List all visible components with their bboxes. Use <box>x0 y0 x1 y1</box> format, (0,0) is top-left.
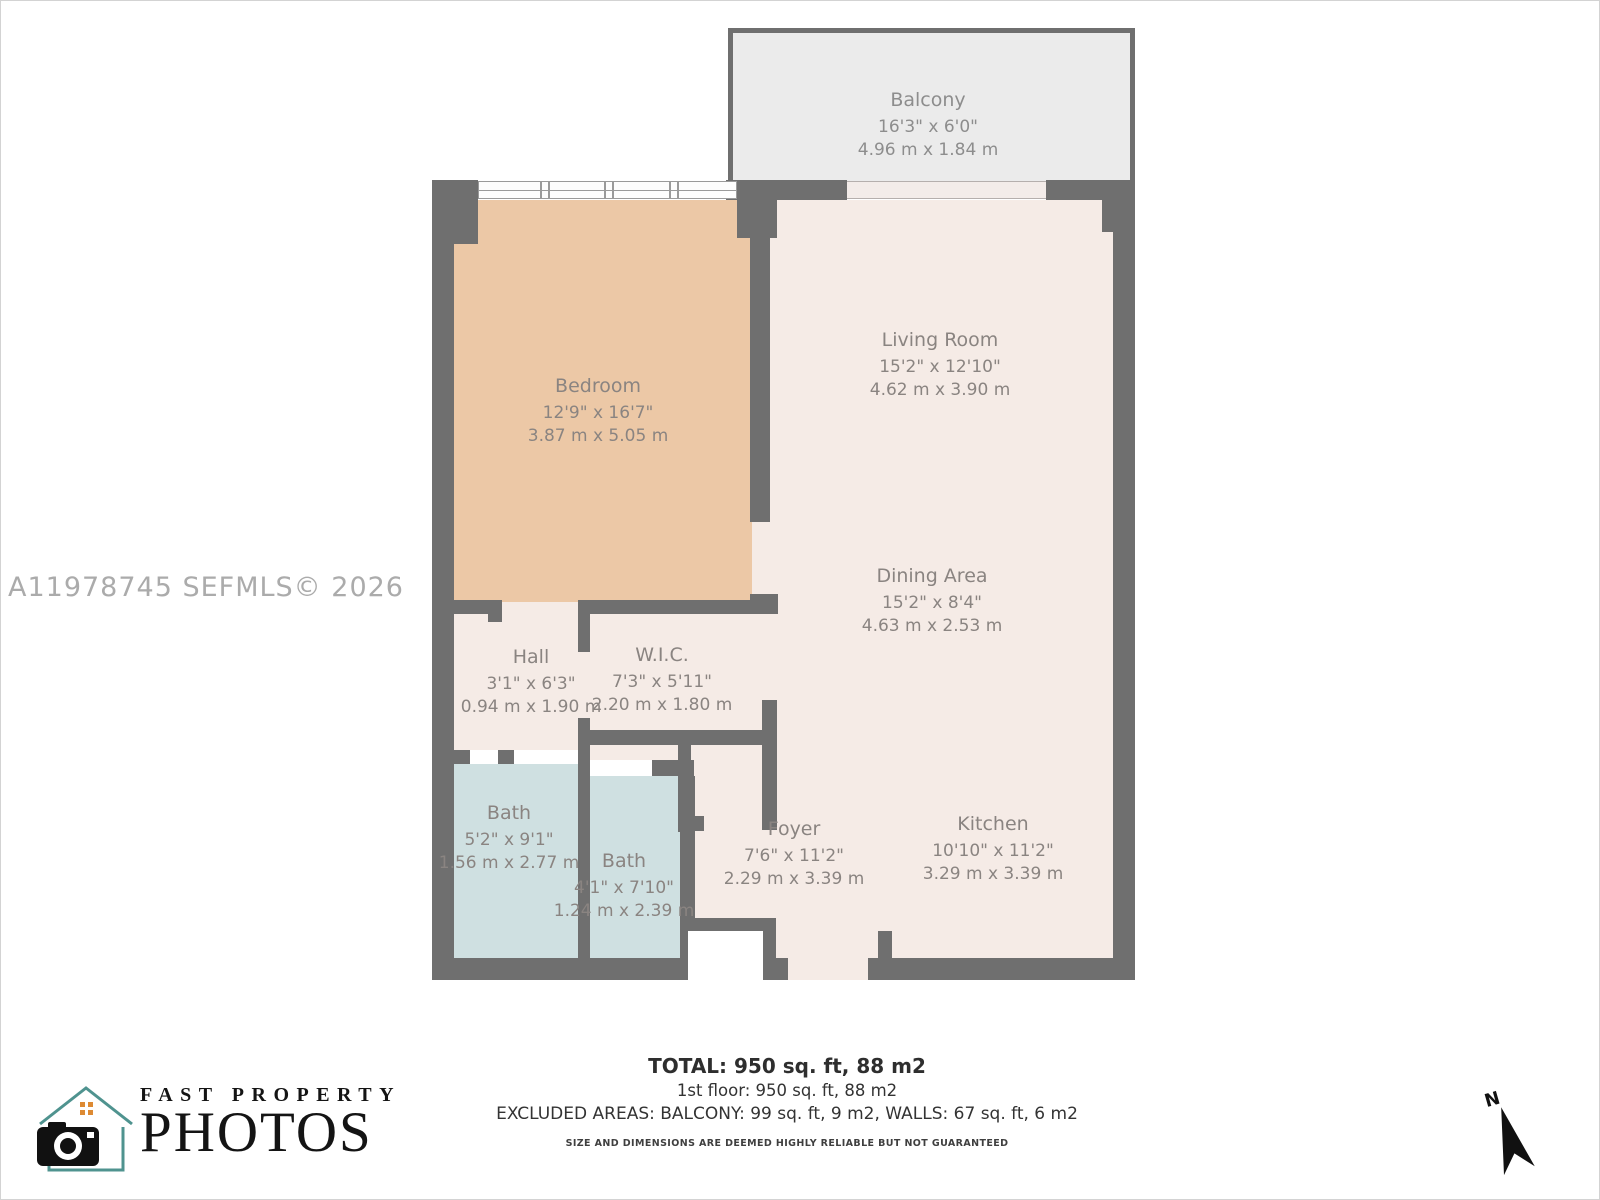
hall-name: Hall <box>461 645 602 670</box>
door-gap-bath2 <box>590 760 652 776</box>
balcony-dim-metric: 4.96 m x 1.84 m <box>858 139 999 162</box>
bedroom-name: Bedroom <box>528 374 669 399</box>
bath2-dim-imperial: 4'1" x 7'10" <box>554 877 695 900</box>
wall-bottom-a <box>432 958 688 980</box>
dining-area-dim-metric: 4.63 m x 2.53 m <box>862 615 1003 638</box>
living-room-dim-metric: 4.62 m x 3.90 m <box>870 379 1011 402</box>
logo-line2: PHOTOS <box>140 1107 401 1159</box>
wall-hall-bottom-a <box>454 750 470 764</box>
foyer-label: Foyer 7'6" x 11'2" 2.29 m x 3.39 m <box>724 817 865 891</box>
living-room-label: Living Room 15'2" x 12'10" 4.62 m x 3.90… <box>870 328 1011 402</box>
mls-watermark: A11978745 SEFMLS© 2026 <box>8 572 404 603</box>
compass: N <box>1462 1080 1558 1192</box>
north-arrow-icon: N <box>1462 1080 1558 1188</box>
door-gap-hall-bath1-left <box>470 750 498 764</box>
bath2-label: Bath 4'1" x 7'10" 1.24 m x 2.39 m <box>554 849 695 923</box>
balcony-sliding-door <box>847 181 1046 199</box>
kitchen-label: Kitchen 10'10" x 11'2" 3.29 m x 3.39 m <box>923 812 1064 886</box>
dining-area-name: Dining Area <box>862 564 1003 589</box>
north-label: N <box>1482 1088 1502 1112</box>
entry-threshold-floor <box>788 958 868 980</box>
kitchen-dim-imperial: 10'10" x 11'2" <box>923 840 1064 863</box>
logo-text: FAST PROPERTY PHOTOS <box>140 1080 401 1159</box>
wall-top-living-a <box>777 180 847 200</box>
hall-dim-metric: 0.94 m x 1.90 m <box>461 696 602 719</box>
wall-entry-stub <box>763 931 776 959</box>
wic-label: W.I.C. 7'3" x 5'11" 2.20 m x 1.80 m <box>592 643 733 717</box>
wall-wic-bottom <box>578 730 777 745</box>
window-glass-line <box>479 190 736 191</box>
window-mullion <box>677 182 679 198</box>
foyer-name: Foyer <box>724 817 865 842</box>
kitchen-name: Kitchen <box>923 812 1064 837</box>
logo-camera-icon <box>37 1122 99 1166</box>
first-floor-area-text: 1st floor: 950 sq. ft, 88 m2 <box>462 1081 1112 1100</box>
bedroom-label: Bedroom 12'9" x 16'7" 3.87 m x 5.05 m <box>528 374 669 448</box>
bath2-dim-metric: 1.24 m x 2.39 m <box>554 900 695 923</box>
dining-area-dim-imperial: 15'2" x 8'4" <box>862 592 1003 615</box>
wic-name: W.I.C. <box>592 643 733 668</box>
foyer-dim-metric: 2.29 m x 3.39 m <box>724 868 865 891</box>
logo-house-camera-icon <box>36 1080 136 1174</box>
door-gap-hall-bath1-right <box>514 750 578 764</box>
wall-closet-right <box>762 700 777 830</box>
hall-dim-imperial: 3'1" x 6'3" <box>461 673 602 696</box>
wic-dim-metric: 2.20 m x 1.80 m <box>592 694 733 717</box>
wall-top-living-b <box>1046 180 1135 200</box>
wall-bath2-top <box>652 760 694 776</box>
dining-area-label: Dining Area 15'2" x 8'4" 4.63 m x 2.53 m <box>862 564 1003 638</box>
balcony-dim-imperial: 16'3" x 6'0" <box>858 116 999 139</box>
wall-wic-top <box>578 600 777 614</box>
window-mullion <box>540 182 542 198</box>
wall-under-bedroom-stub <box>488 600 502 622</box>
wall-bedroom-living <box>750 200 770 522</box>
window-mullion <box>604 182 606 198</box>
entry-alcove <box>688 931 763 980</box>
window-mullion <box>669 182 671 198</box>
logo-house-roof <box>40 1088 132 1124</box>
foyer-dim-imperial: 7'6" x 11'2" <box>724 845 865 868</box>
bedroom-window <box>478 181 737 199</box>
wall-bottom-b <box>762 958 788 980</box>
kitchen-dim-metric: 3.29 m x 3.39 m <box>923 863 1064 886</box>
bath1-name: Bath <box>439 801 580 826</box>
wall-kitchen-stub <box>878 931 892 959</box>
living-room-dim-imperial: 15'2" x 12'10" <box>870 356 1011 379</box>
hall-label: Hall 3'1" x 6'3" 0.94 m x 1.90 m <box>461 645 602 719</box>
bedroom-dim-metric: 3.87 m x 5.05 m <box>528 425 669 448</box>
bedroom-dim-imperial: 12'9" x 16'7" <box>528 402 669 425</box>
fast-property-photos-logo: FAST PROPERTY PHOTOS <box>36 1080 401 1174</box>
wall-outer-right <box>1113 180 1135 980</box>
wic-dim-imperial: 7'3" x 5'11" <box>592 671 733 694</box>
wall-top-left-block <box>432 180 478 244</box>
balcony-name: Balcony <box>858 88 999 113</box>
excluded-areas-text: EXCLUDED AREAS: BALCONY: 99 sq. ft, 9 m2… <box>462 1104 1112 1124</box>
bath2-name: Bath <box>554 849 695 874</box>
disclaimer-text: SIZE AND DIMENSIONS ARE DEEMED HIGHLY RE… <box>462 1138 1112 1149</box>
living-room-name: Living Room <box>870 328 1011 353</box>
balcony-label: Balcony 16'3" x 6'0" 4.96 m x 1.84 m <box>858 88 999 162</box>
wall-bottom-c <box>868 958 1135 980</box>
floorplan-page: Balcony 16'3" x 6'0" 4.96 m x 1.84 m Bed… <box>0 0 1600 1200</box>
window-mullion <box>612 182 614 198</box>
footer-totals: TOTAL: 950 sq. ft, 88 m2 1st floor: 950 … <box>462 1054 1112 1149</box>
window-mullion <box>548 182 550 198</box>
wall-hall-bottom-stub <box>498 750 514 764</box>
logo-house-window <box>80 1102 93 1115</box>
total-area-text: TOTAL: 950 sq. ft, 88 m2 <box>462 1054 1112 1078</box>
wall-entry-cap <box>688 918 776 931</box>
